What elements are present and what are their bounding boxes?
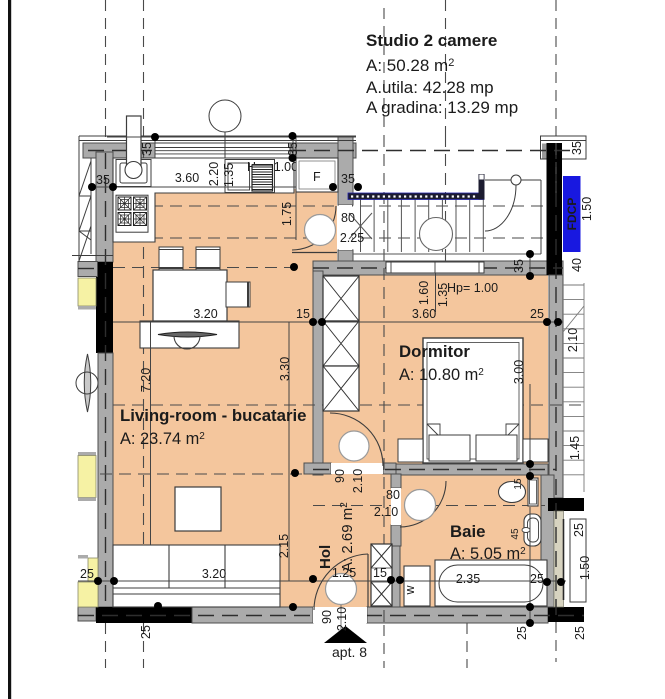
svg-text:Dormitor: Dormitor [399,342,470,361]
svg-text:A.utila: 42.28 mp: A.utila: 42.28 mp [366,78,494,97]
svg-text:1.75: 1.75 [280,202,294,226]
svg-text:F: F [313,170,321,184]
svg-text:A: 50.28 m2: A: 50.28 m2 [366,56,454,75]
svg-text:3.60: 3.60 [412,307,436,321]
svg-text:25: 25 [139,625,153,639]
svg-text:A: 23.74 m2: A: 23.74 m2 [120,430,205,448]
svg-text:35: 35 [512,259,526,273]
svg-text:2.35: 2.35 [456,572,480,586]
svg-text:2.15: 2.15 [277,534,291,558]
svg-text:3.20: 3.20 [202,567,226,581]
svg-text:3.00: 3.00 [512,360,526,384]
svg-text:7.20: 7.20 [139,368,153,392]
svg-text:15: 15 [513,478,524,490]
svg-text:3.20: 3.20 [193,307,217,321]
svg-text:A gradina: 13.29 mp: A gradina: 13.29 mp [366,98,518,117]
svg-text:Baie: Baie [450,522,485,541]
svg-text:25: 25 [530,307,544,321]
svg-text:25: 25 [515,626,529,640]
svg-text:2.10: 2.10 [566,328,580,352]
svg-text:1.35: 1.35 [222,163,236,187]
svg-text:FDCP: FDCP [565,198,579,231]
svg-text:1.25: 1.25 [332,566,356,580]
svg-text:90: 90 [333,469,347,483]
svg-text:1.50: 1.50 [578,556,592,580]
svg-text:2.10: 2.10 [335,607,349,631]
svg-text:Living-room - bucatarie: Living-room - bucatarie [120,406,306,425]
svg-text:35: 35 [570,141,584,155]
svg-text:2.25: 2.25 [340,231,364,245]
svg-text:15: 15 [296,307,310,321]
svg-text:A: 10.80 m2: A: 10.80 m2 [399,366,484,384]
svg-text:25: 25 [572,523,586,537]
svg-text:45: 45 [510,528,521,540]
svg-text:A: 5.05 m2: A: 5.05 m2 [450,545,526,563]
svg-text:apt. 8: apt. 8 [332,644,367,660]
svg-text:35: 35 [96,173,110,187]
svg-text:A: 2.69 m2: A: 2.69 m2 [339,502,356,572]
svg-text:25: 25 [573,626,587,640]
svg-text:w: w [403,585,417,596]
svg-text:80: 80 [386,488,400,502]
svg-text:15: 15 [373,566,387,580]
svg-text:3.60: 3.60 [175,171,199,185]
svg-text:Hp= 1.00: Hp= 1.00 [447,281,498,295]
svg-text:1.60: 1.60 [417,281,431,305]
svg-text:35: 35 [140,142,154,156]
svg-text:90: 90 [320,610,334,624]
svg-text:35: 35 [286,142,300,156]
svg-text:80: 80 [341,211,355,225]
svg-text:40: 40 [570,258,584,272]
svg-text:2.10: 2.10 [374,505,398,519]
svg-text:2.20: 2.20 [207,162,221,186]
svg-text:3.30: 3.30 [278,357,292,381]
svg-text:25: 25 [530,572,544,586]
svg-text:25: 25 [80,567,94,581]
svg-text:1.50: 1.50 [580,197,594,221]
svg-text:1.45: 1.45 [568,436,582,460]
svg-text:35: 35 [341,172,355,186]
svg-text:2.10: 2.10 [351,469,365,493]
svg-text:Studio 2 camere: Studio 2 camere [366,31,497,50]
